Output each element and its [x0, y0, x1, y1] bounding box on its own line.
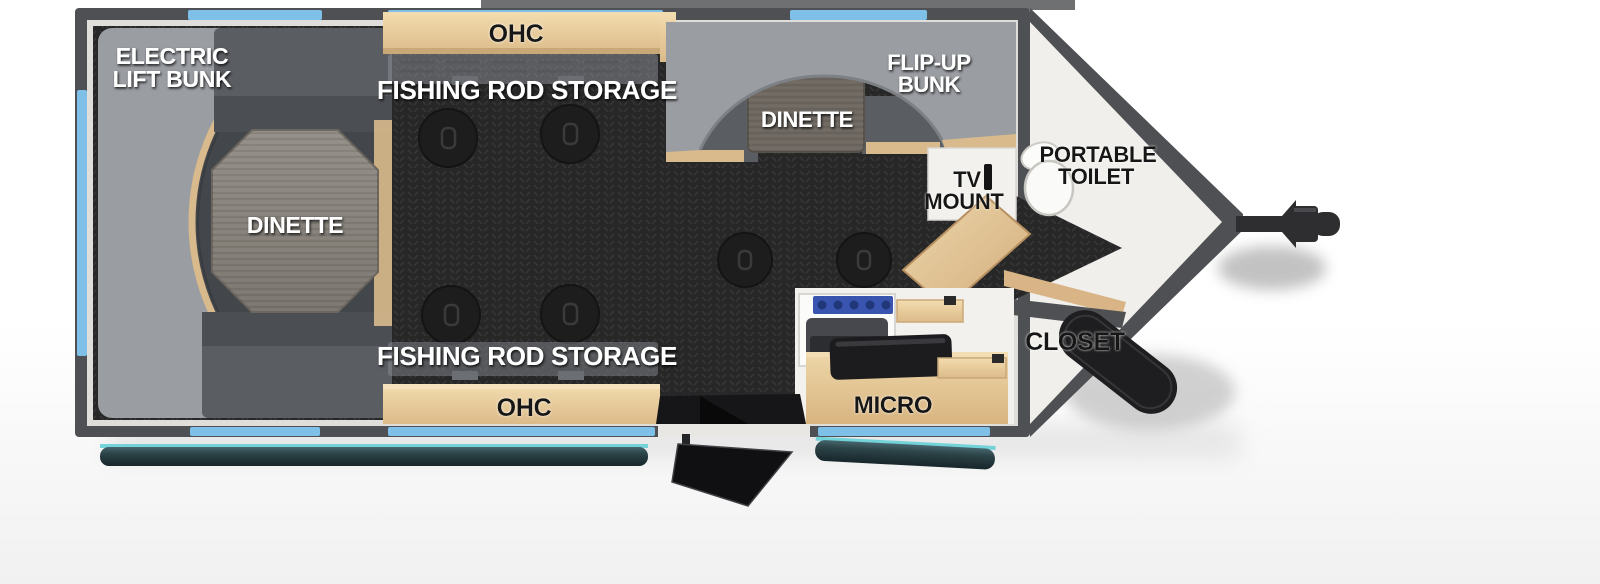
- floorplan-canvas: ELECTRIC LIFT BUNK OHC FISHING ROD STORA…: [0, 0, 1600, 584]
- hitch-icon: [1236, 200, 1340, 248]
- window-strip: [818, 427, 990, 436]
- label-closet: CLOSET: [1025, 328, 1125, 356]
- window-strip: [188, 10, 322, 20]
- label-portable-toilet-line2: TOILET: [1058, 164, 1135, 189]
- label-ohc-bottom: OHC: [497, 394, 552, 422]
- fishing-hole-icon: [837, 233, 891, 287]
- label-tv-mount-line2: MOUNT: [924, 189, 1004, 214]
- label-dinette-right: DINETTE: [761, 107, 853, 132]
- label-flip-up-bunk-line2: BUNK: [898, 72, 961, 97]
- label-fishing-rod-storage-bottom: FISHING ROD STORAGE: [377, 341, 677, 371]
- entry-door-icon: [672, 444, 792, 506]
- fishing-hole-icon: [419, 109, 477, 167]
- flip-up-bunk-area: [666, 22, 1016, 162]
- window-strip: [388, 427, 655, 436]
- label-ohc-top: OHC: [489, 20, 544, 48]
- awning-tube-icon: [100, 447, 648, 466]
- label-dinette-left: DINETTE: [247, 212, 343, 238]
- label-micro: MICRO: [854, 392, 933, 419]
- label-fishing-rod-storage-top: FISHING ROD STORAGE: [377, 75, 677, 105]
- tv-icon: [984, 164, 992, 190]
- window-strip: [190, 427, 320, 436]
- window-strip: [77, 90, 87, 356]
- fishing-hole-icon: [718, 233, 772, 287]
- window-strip: [790, 10, 927, 20]
- label-electric-lift-bunk-line2: LIFT BUNK: [113, 66, 232, 92]
- fishing-hole-icon: [422, 286, 480, 344]
- door-threshold: [658, 424, 810, 437]
- fishing-hole-icon: [541, 285, 599, 343]
- fishing-hole-icon: [541, 105, 599, 163]
- floorplan-svg: ELECTRIC LIFT BUNK OHC FISHING ROD STORA…: [0, 0, 1600, 584]
